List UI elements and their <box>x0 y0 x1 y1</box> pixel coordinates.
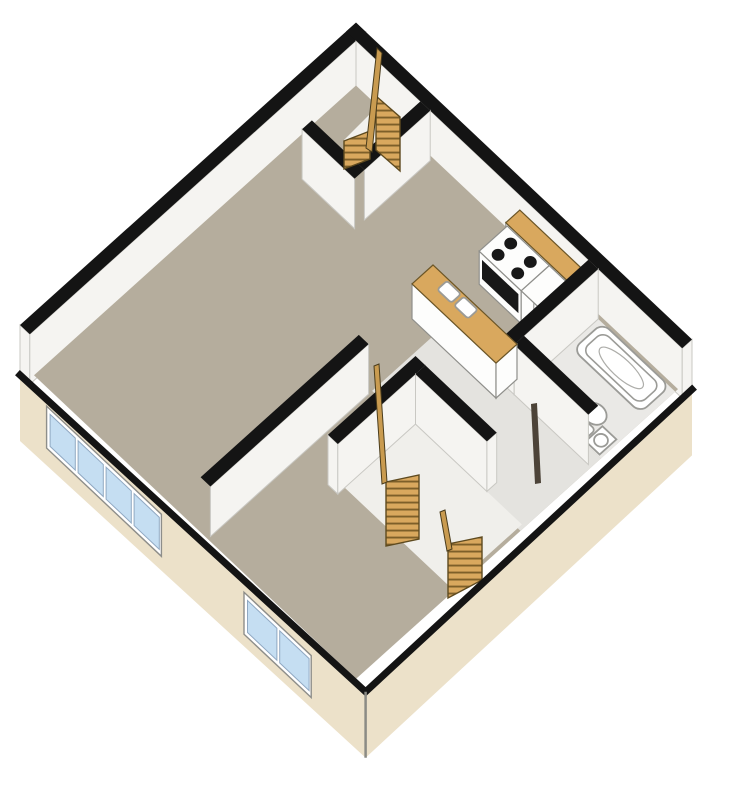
floor-plan <box>0 0 750 795</box>
stair-flight-upper <box>386 475 419 546</box>
stairwell-wall-end <box>328 435 338 494</box>
floor-plan-stage <box>0 0 750 795</box>
stairwell-wall-end <box>487 433 497 492</box>
